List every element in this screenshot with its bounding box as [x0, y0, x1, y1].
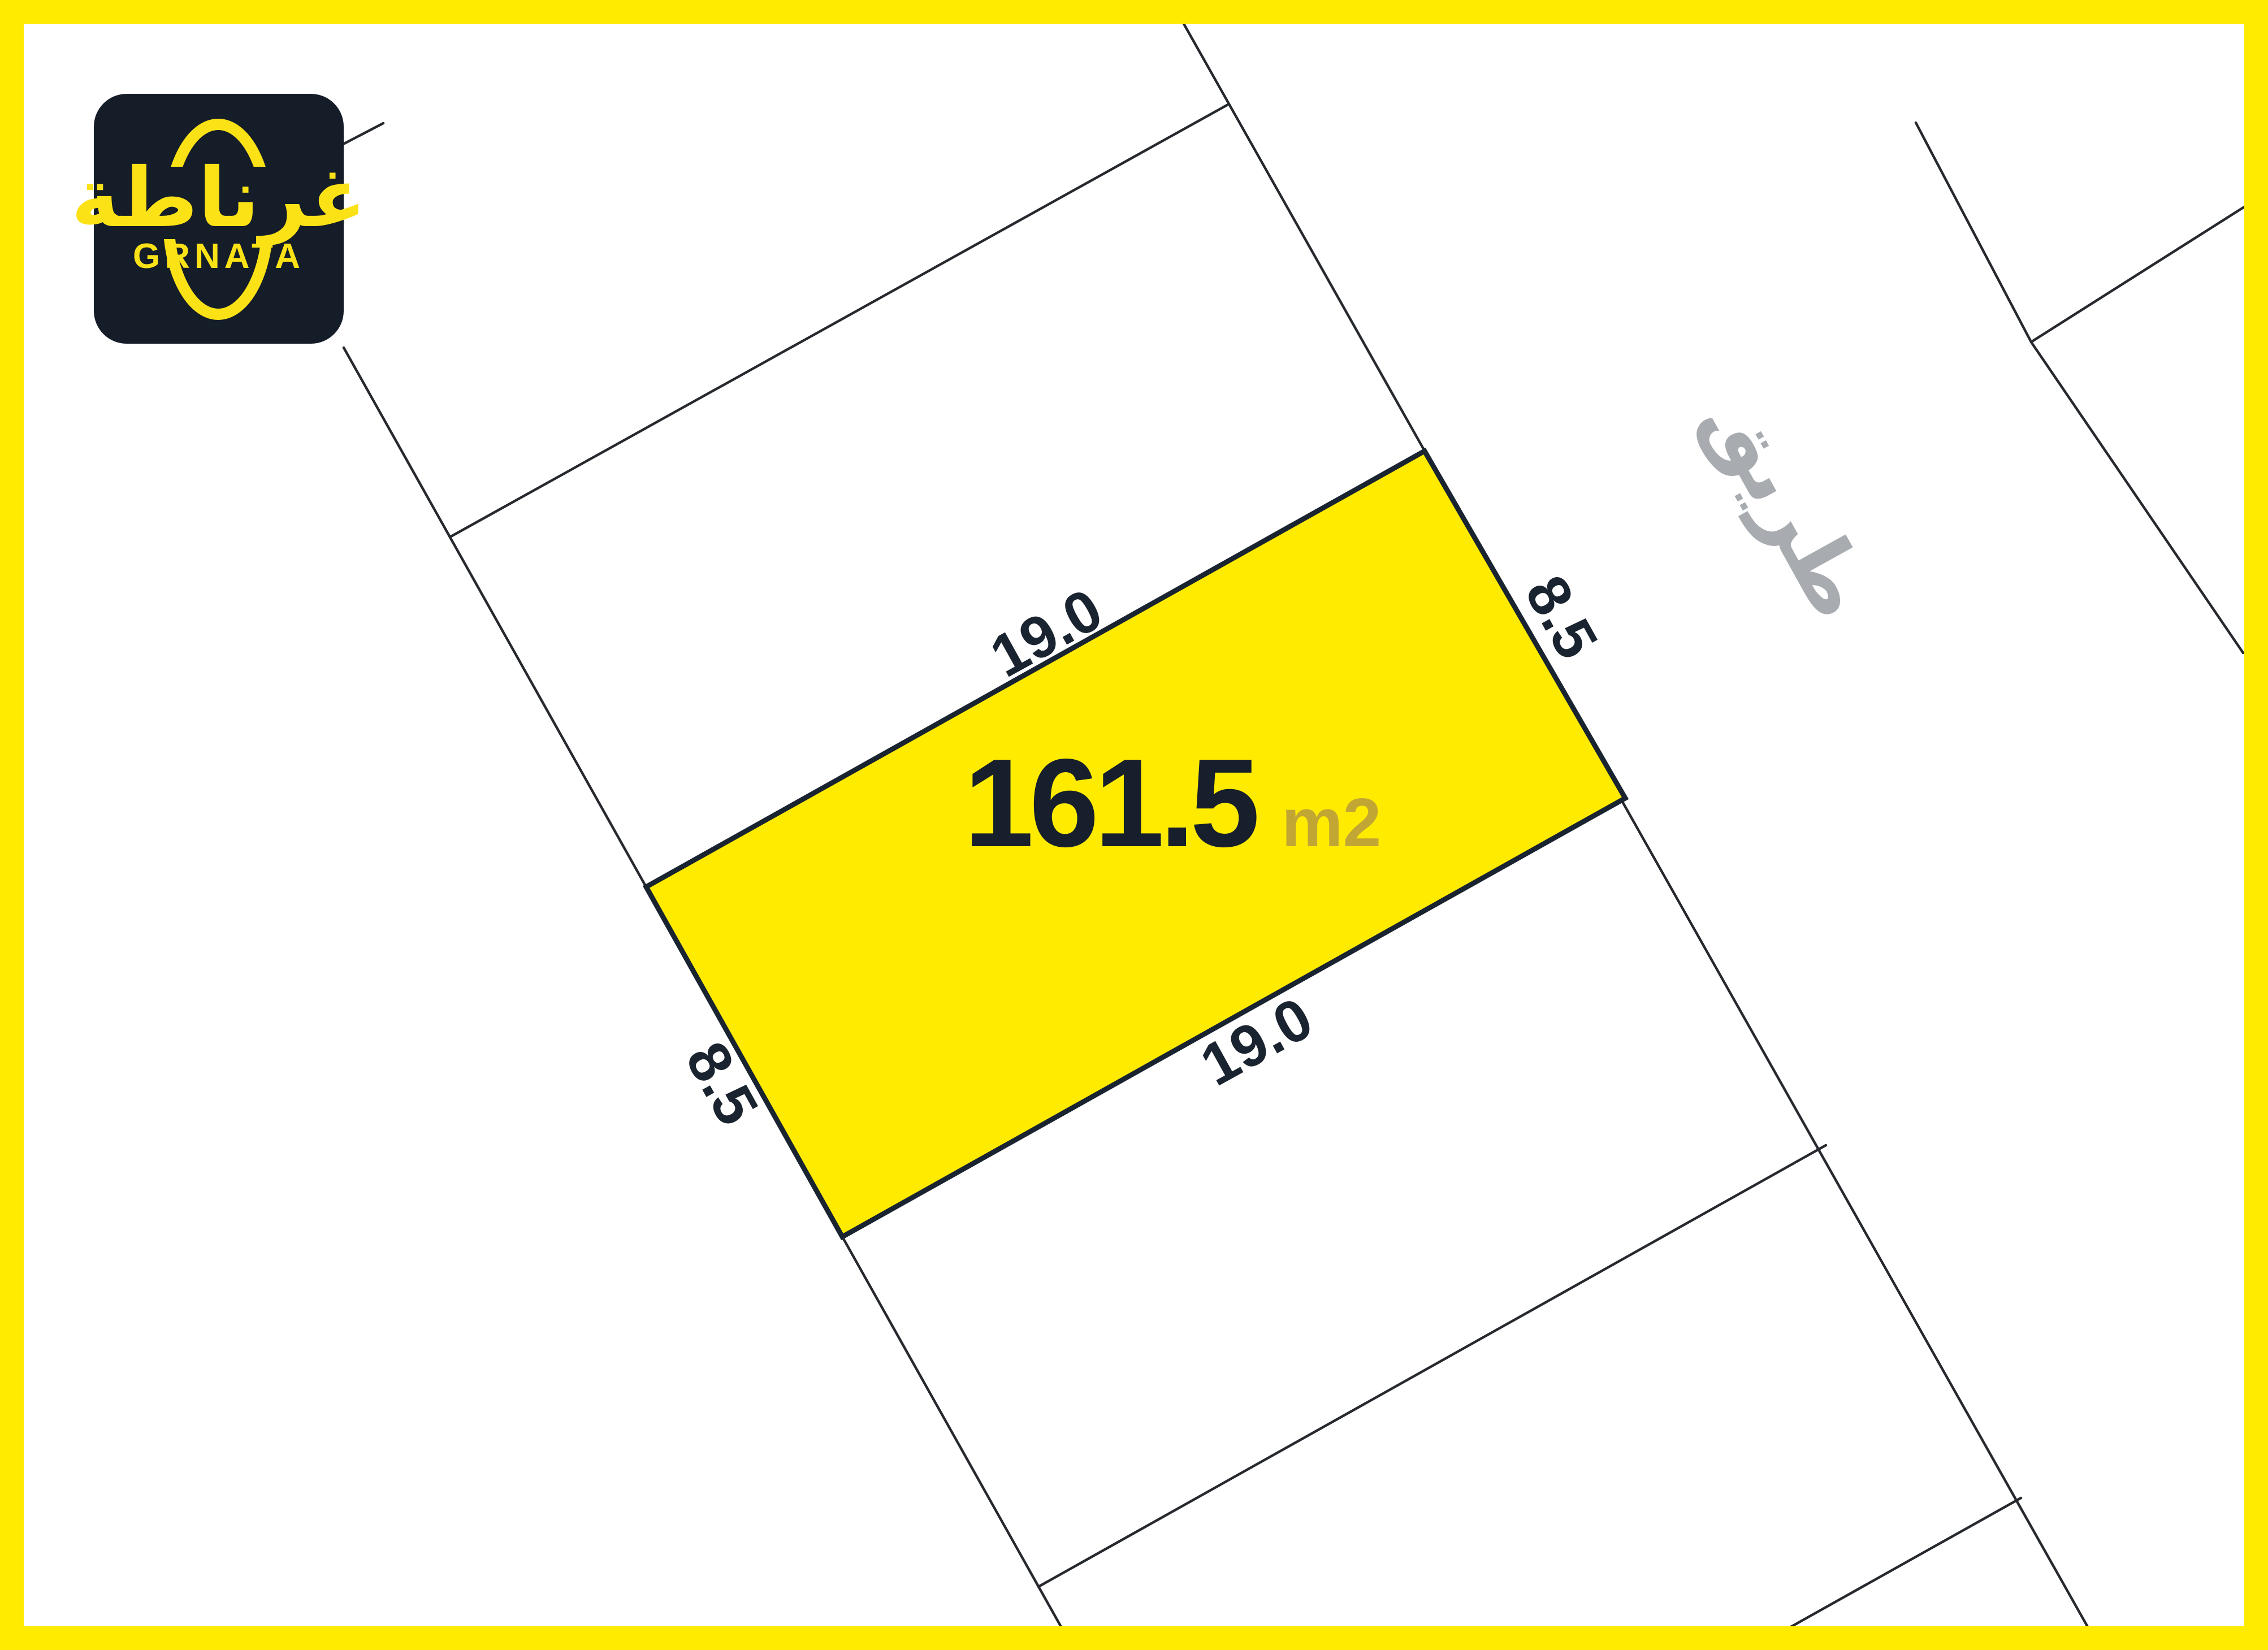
logo-arabic-wordmark: غرناطة: [71, 150, 367, 246]
area-value-label: 161.5: [964, 733, 1257, 873]
plot-map-canvas: 19.0 8.5 19.0 8.5 161.5 m2 طريق غرناطة G…: [0, 0, 2268, 1650]
area-unit-label: m2: [1282, 784, 1381, 861]
brand-logo: غرناطة GRNATA: [71, 94, 367, 344]
logo-latin-wordmark: GRNATA: [133, 237, 305, 276]
